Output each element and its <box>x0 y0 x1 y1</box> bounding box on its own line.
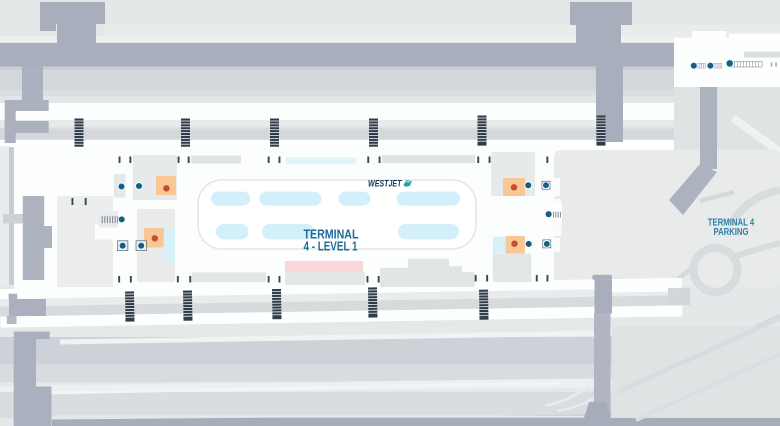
svg-text:4 - LEVEL 1: 4 - LEVEL 1 <box>304 239 358 254</box>
svg-text:WESTJET: WESTJET <box>368 179 403 189</box>
svg-text:PARKING: PARKING <box>714 226 749 238</box>
